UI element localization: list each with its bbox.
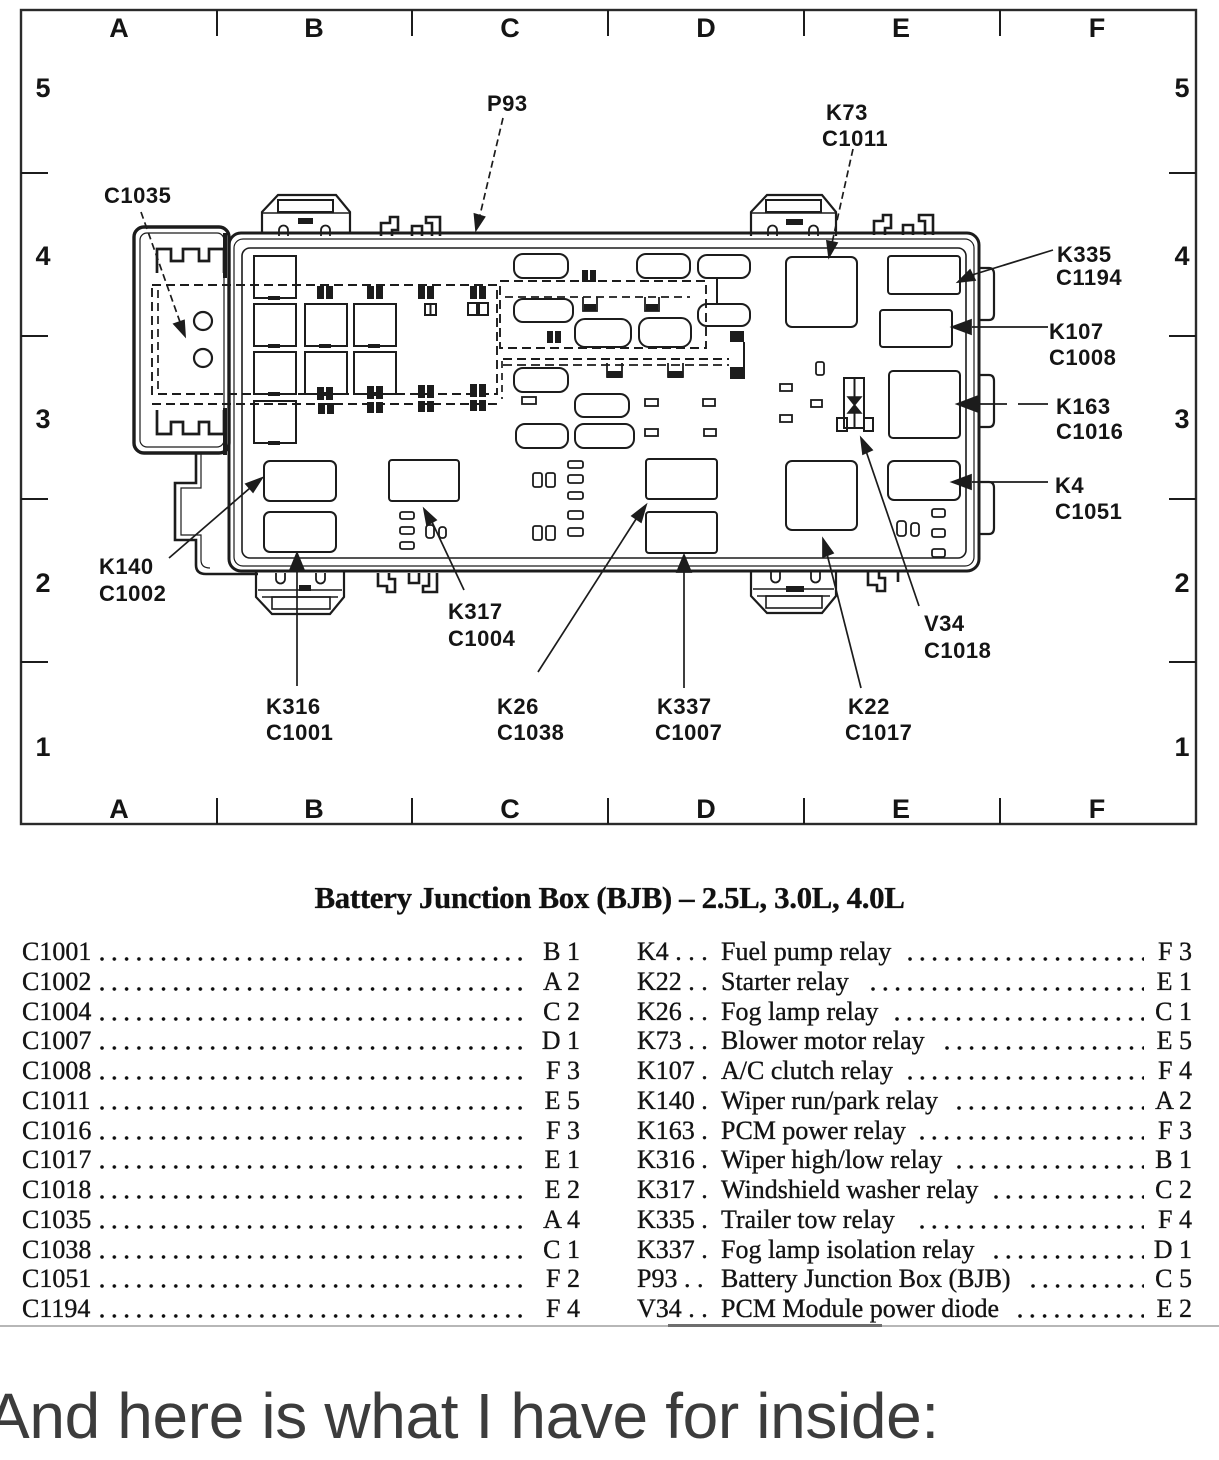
svg-text:5: 5 <box>1174 73 1189 103</box>
svg-text:4: 4 <box>1174 241 1189 271</box>
svg-text:K140: K140 <box>99 554 154 579</box>
svg-text:C1194: C1194 <box>1056 265 1122 290</box>
svg-text:3: 3 <box>1174 404 1189 434</box>
svg-text:E: E <box>892 13 910 43</box>
svg-text:4: 4 <box>35 241 50 271</box>
svg-text:D: D <box>696 13 716 43</box>
svg-text:C1001: C1001 <box>266 720 333 745</box>
svg-text:K317: K317 <box>448 599 503 624</box>
svg-text:K4: K4 <box>1055 473 1084 498</box>
svg-text:K316: K316 <box>266 694 321 719</box>
svg-text:1: 1 <box>35 732 50 762</box>
svg-text:5: 5 <box>35 73 50 103</box>
svg-text:C: C <box>500 13 520 43</box>
svg-text:F: F <box>1089 794 1106 824</box>
svg-text:D: D <box>696 794 716 824</box>
svg-text:C1051: C1051 <box>1055 499 1122 524</box>
svg-text:2: 2 <box>1174 568 1189 598</box>
svg-text:C1004: C1004 <box>448 626 516 651</box>
svg-text:B: B <box>304 13 324 43</box>
svg-text:1: 1 <box>1174 732 1189 762</box>
svg-text:K335: K335 <box>1057 242 1112 267</box>
svg-text:A: A <box>109 794 129 824</box>
svg-text:E: E <box>892 794 910 824</box>
svg-text:C1038: C1038 <box>497 720 564 745</box>
svg-text:C1016: C1016 <box>1056 419 1123 444</box>
svg-text:K73: K73 <box>826 100 868 125</box>
svg-text:K107: K107 <box>1049 319 1104 344</box>
svg-text:K163: K163 <box>1056 394 1111 419</box>
svg-text:3: 3 <box>35 404 50 434</box>
svg-text:C1017: C1017 <box>845 720 912 745</box>
svg-text:C1007: C1007 <box>655 720 722 745</box>
svg-text:C1018: C1018 <box>924 638 991 663</box>
svg-text:C1035: C1035 <box>104 183 171 208</box>
svg-text:V34: V34 <box>924 611 965 636</box>
svg-text:K337: K337 <box>657 694 712 719</box>
svg-text:C1008: C1008 <box>1049 345 1116 370</box>
svg-text:2: 2 <box>35 568 50 598</box>
svg-text:K26: K26 <box>497 694 539 719</box>
svg-text:C1002: C1002 <box>99 581 166 606</box>
svg-text:A: A <box>109 13 129 43</box>
svg-text:C: C <box>500 794 520 824</box>
svg-text:B: B <box>304 794 324 824</box>
svg-text:K22: K22 <box>848 694 890 719</box>
svg-text:C1011: C1011 <box>822 126 888 151</box>
svg-text:F: F <box>1089 13 1106 43</box>
svg-text:P93: P93 <box>487 91 528 116</box>
